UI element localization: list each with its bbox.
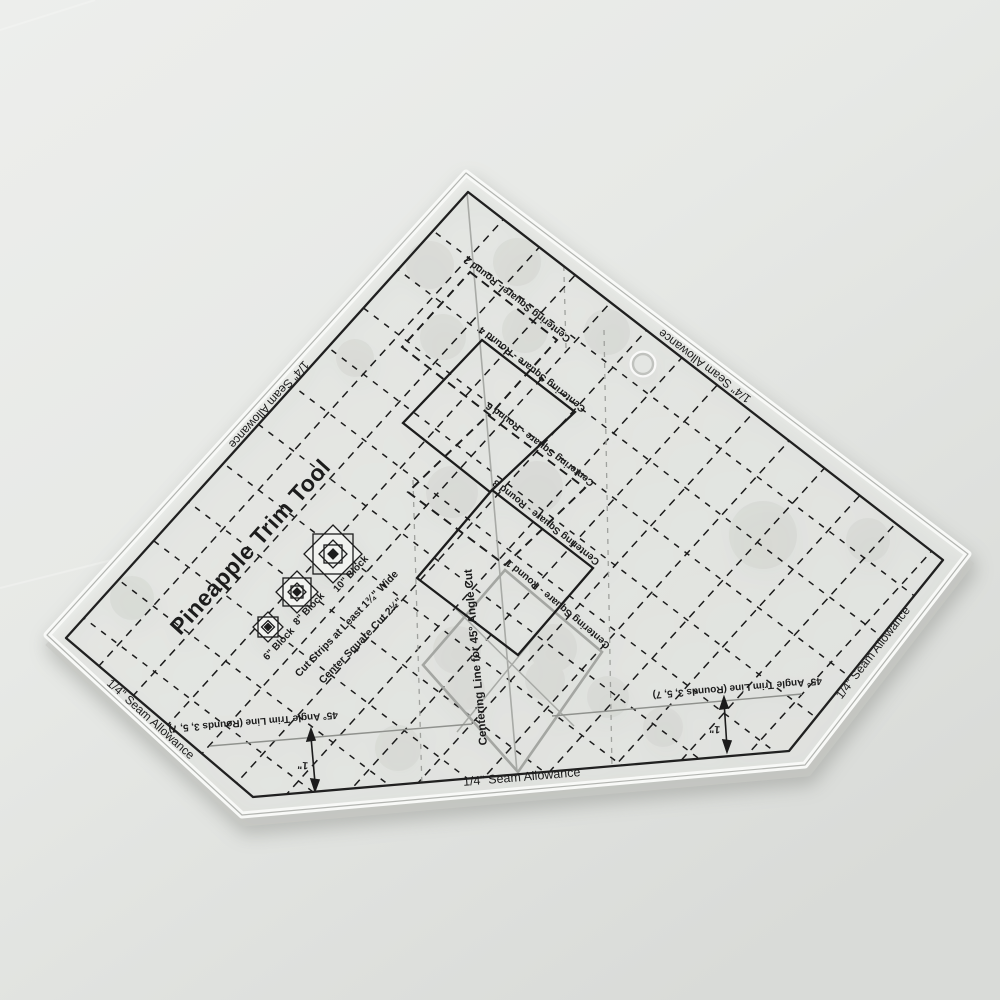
hanging-hole — [631, 352, 655, 376]
one-inch-label-left: 1" — [297, 759, 309, 772]
pineapple-trim-tool-photo: Pineapple Trim Tool 6" Block 8" Block 10… — [0, 0, 1000, 1000]
one-inch-label-right: 1" — [709, 723, 721, 736]
product-photo-scene: Pineapple Trim Tool 6" Block 8" Block 10… — [0, 0, 1000, 1000]
